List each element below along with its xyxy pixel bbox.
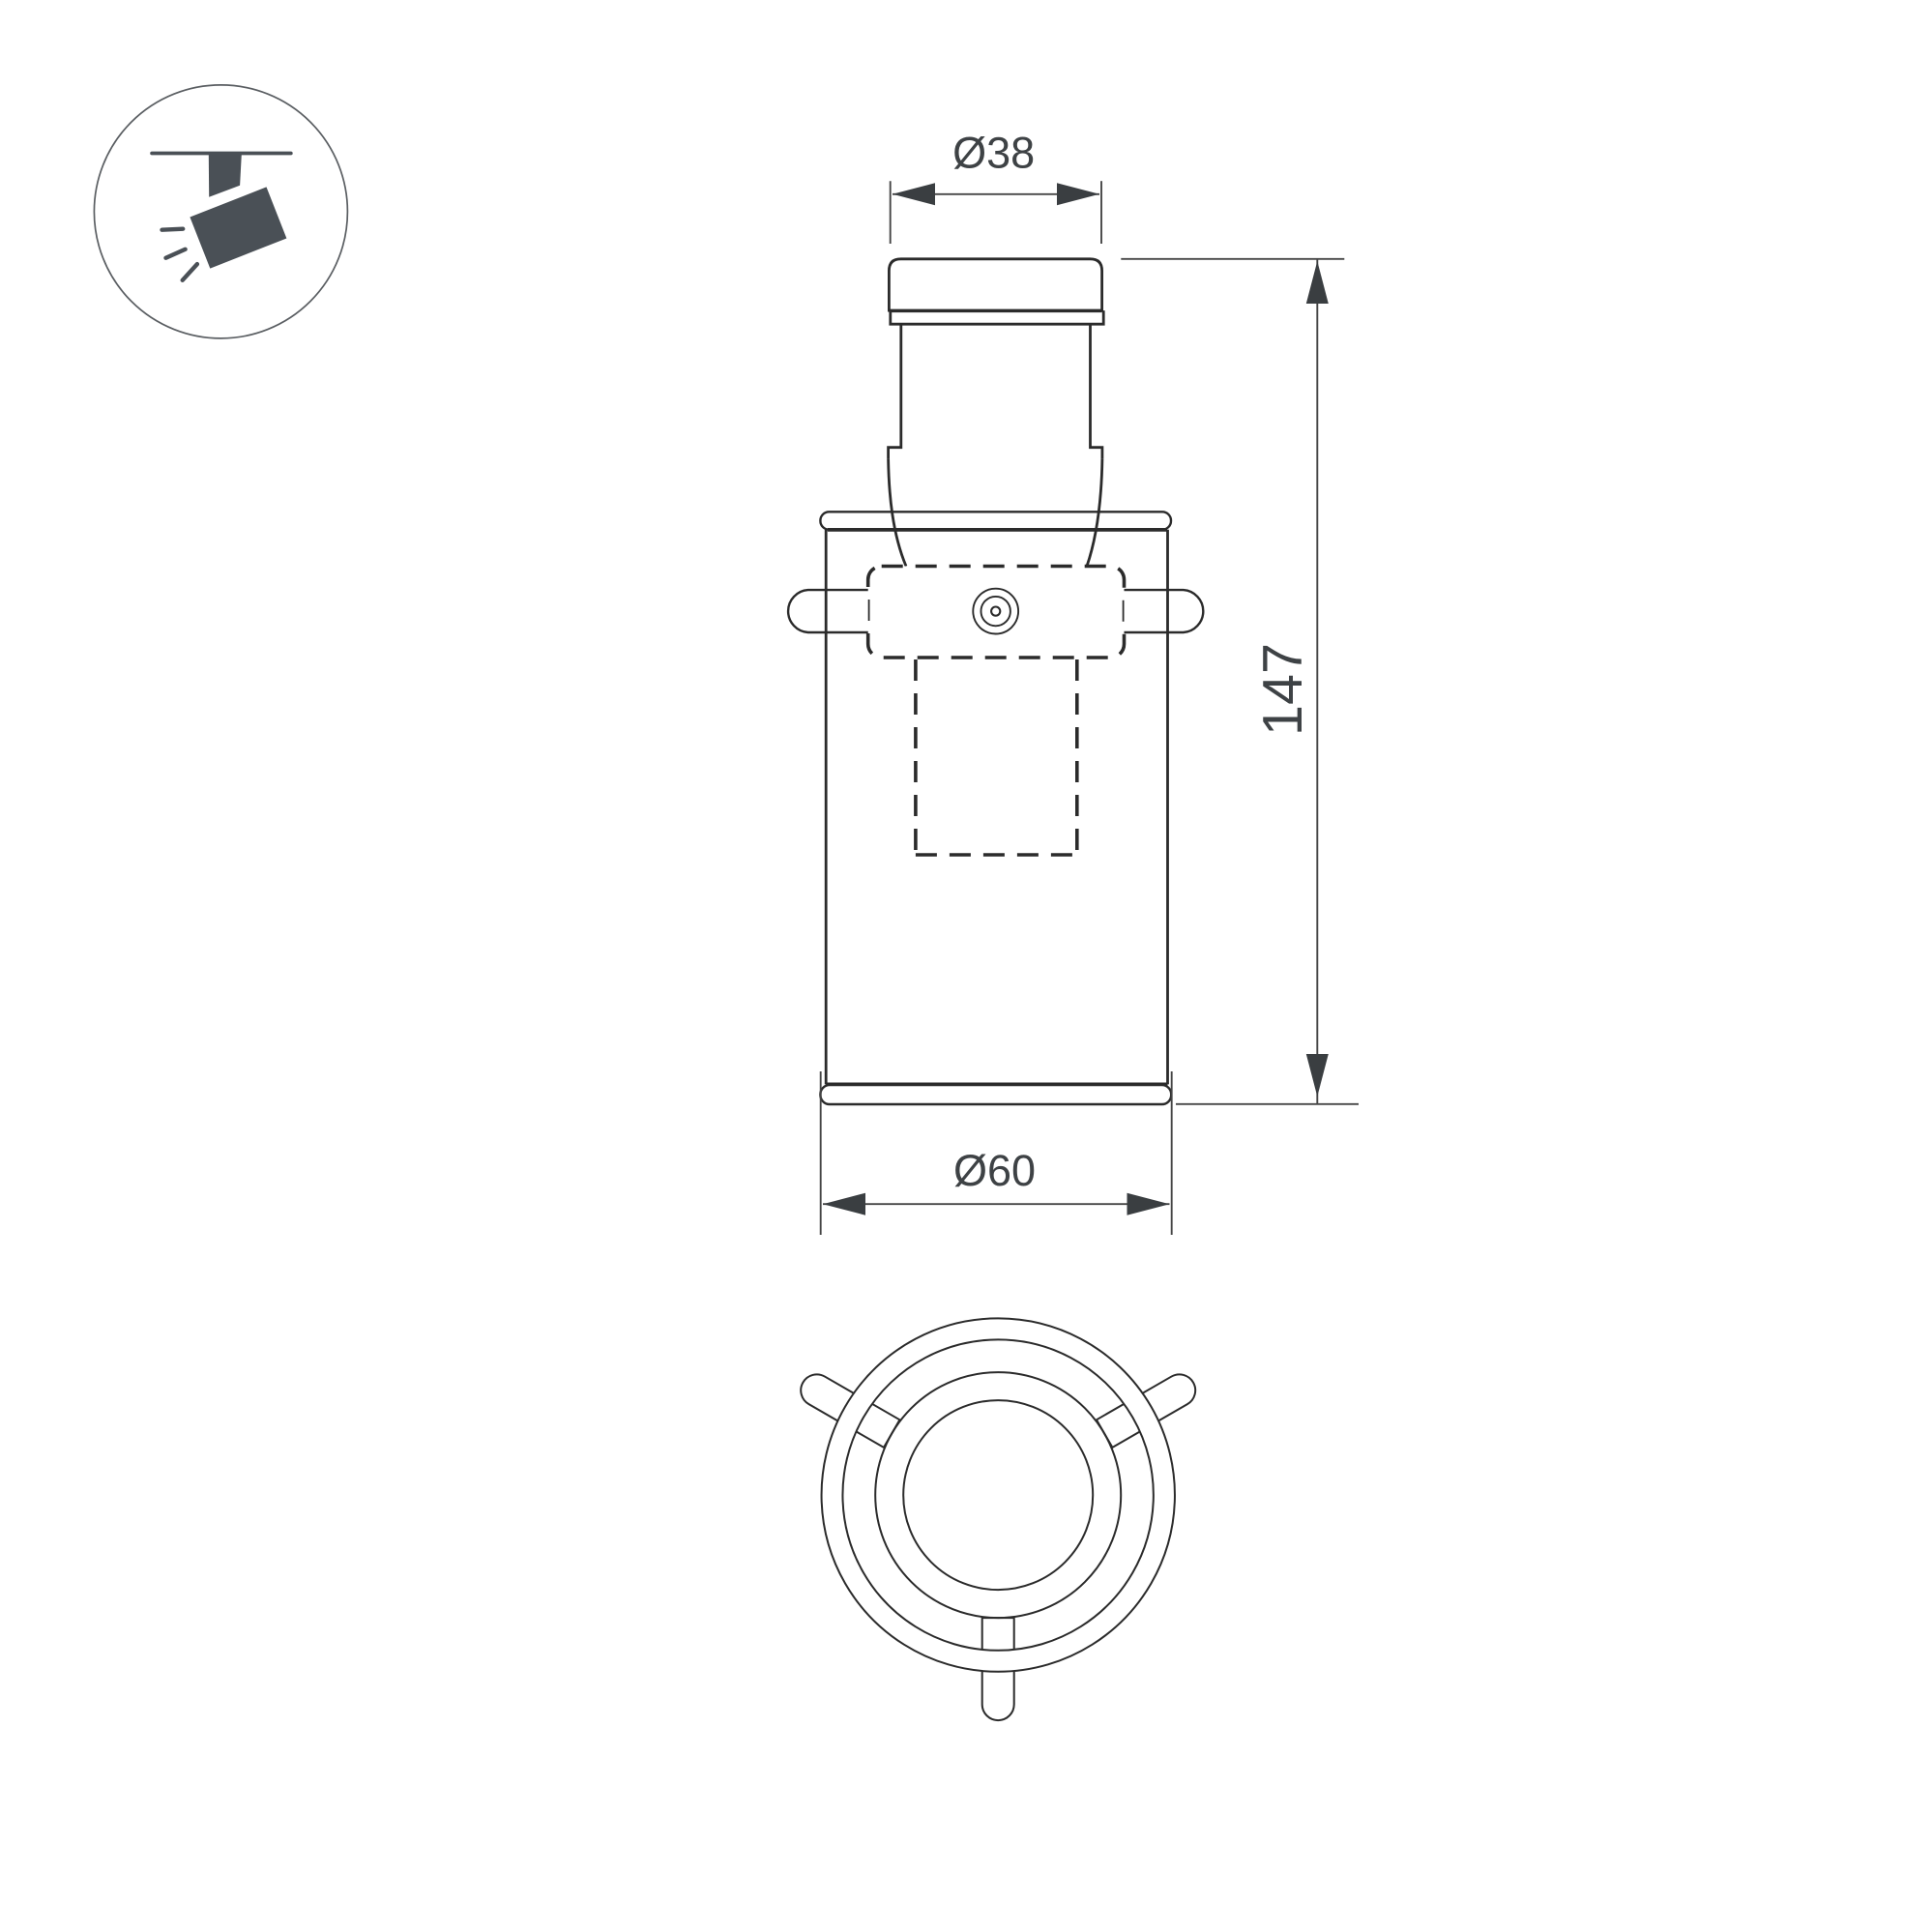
svg-text:Ø38: Ø38	[952, 129, 1035, 178]
svg-text:Ø60: Ø60	[953, 1146, 1036, 1195]
svg-text:147: 147	[1252, 643, 1314, 736]
